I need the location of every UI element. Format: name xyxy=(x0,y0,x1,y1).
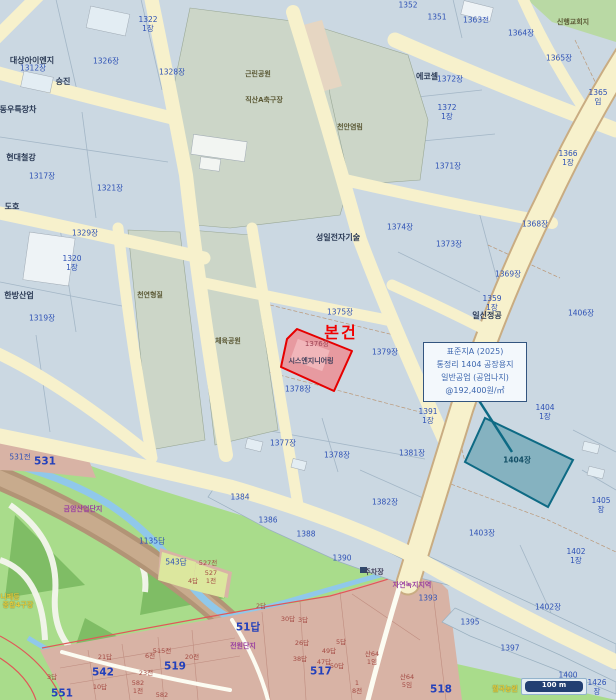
subject-marker-label: 본건 xyxy=(324,319,357,343)
map-label: 1373장 xyxy=(436,240,462,249)
map-label: 승진 xyxy=(56,77,71,87)
map-label: 1406장 xyxy=(568,309,594,318)
map-label: 1363전 xyxy=(463,16,489,25)
map-label: 천안염림 xyxy=(337,123,363,131)
map-label: 1365임 xyxy=(588,88,607,106)
map-label: 10답 xyxy=(93,684,107,692)
map-label: 1388 xyxy=(296,530,315,539)
map-label: 543답 xyxy=(165,558,186,567)
map-scale-bar: 100 m xyxy=(521,678,587,695)
map-label: 1378장 xyxy=(285,385,311,394)
map-label: 1322 1장 xyxy=(138,15,157,33)
map-label: 현대철강 xyxy=(6,153,35,163)
map-label: 1397 xyxy=(500,644,519,653)
map-label: 1366 1장 xyxy=(558,149,577,167)
map-label: 1390 xyxy=(332,554,351,563)
map-label: 1317장 xyxy=(29,172,55,181)
map-label: 주차장 xyxy=(364,568,383,576)
map-label: 에코셀 xyxy=(416,72,438,82)
annotation-line-2: 통정리 1404 공장용지 xyxy=(424,358,526,371)
map-label: 50답 xyxy=(330,663,344,671)
map-label: 582 xyxy=(156,692,168,700)
map-label: 월곡농원 xyxy=(492,685,518,693)
map-label: 1426장 xyxy=(587,678,606,696)
map-label: 1402 1장 xyxy=(566,547,585,565)
annotation-line-1: 표준지A (2025) xyxy=(424,345,526,358)
map-label: 1326장 xyxy=(93,57,119,66)
map-label: 3답 xyxy=(47,674,57,682)
standard-lot-annotation: 표준지A (2025) 통정리 1404 공장용지 일반공업 (공업나지) @1… xyxy=(423,342,527,402)
map-canvas[interactable]: 1322 1장135113521363전1364장1365장1365임1326장… xyxy=(0,0,616,700)
map-label: 47답 xyxy=(317,659,331,667)
map-label: 전원단지 xyxy=(230,642,256,650)
map-label: 1365장 xyxy=(546,54,572,63)
map-label: 니페등 xyxy=(0,593,19,601)
map-label: 531전 xyxy=(9,453,30,462)
map-label: 6전 xyxy=(145,653,155,661)
map-label: 대상아이엔지 xyxy=(10,56,54,66)
map-label: 도호 xyxy=(5,202,20,212)
map-label: 1321장 xyxy=(97,184,123,193)
map-label: 1404 1장 xyxy=(535,403,554,421)
map-label: 1328장 xyxy=(159,68,185,77)
map-label: 산64 5임 xyxy=(400,674,414,690)
map-label: 1402장 xyxy=(535,603,561,612)
map-label: 1386 xyxy=(258,516,277,525)
map-label: 1 8전 xyxy=(352,680,362,696)
map-label: 한방산업 xyxy=(4,291,33,301)
map-label: 551 xyxy=(51,688,73,700)
map-label: 직산A축구장 xyxy=(245,96,283,104)
map-label: 21답 xyxy=(98,654,112,662)
annotation-line-4: @192,400원/㎡ xyxy=(424,384,526,397)
map-label: 1404장 xyxy=(503,456,531,465)
map-label: 5답 xyxy=(336,639,346,647)
map-label: 1403장 xyxy=(469,529,495,538)
map-label: 1377장 xyxy=(270,439,296,448)
map-label: 1369장 xyxy=(495,270,521,279)
map-label: 1364장 xyxy=(508,29,534,38)
map-label: 1351 xyxy=(427,13,446,22)
map-label: 1312장 xyxy=(20,64,46,73)
map-label: 4답 xyxy=(188,578,198,586)
map-label: 성일전자기술 xyxy=(316,233,360,243)
map-label: 1395 xyxy=(460,618,479,627)
annotation-line-3: 일반공업 (공업나지) xyxy=(424,371,526,384)
map-label: 49답 xyxy=(322,648,336,656)
map-label: 1359 1장 xyxy=(482,294,501,312)
map-label: 30답 xyxy=(281,616,295,624)
map-label: 527 1전 xyxy=(205,570,217,586)
map-label: 2답 xyxy=(256,603,266,611)
map-label: 531 xyxy=(34,456,56,469)
map-label: 1320 1장 xyxy=(62,254,81,272)
map-label: 1378장 xyxy=(324,451,350,460)
map-label: 519 xyxy=(164,661,186,674)
scale-bar-label: 100 m xyxy=(525,681,583,692)
map-label: 근린공원 xyxy=(245,70,271,78)
map-label: 23전 xyxy=(139,670,153,678)
map-label: 1319장 xyxy=(29,314,55,323)
map-label: 1329장 xyxy=(72,229,98,238)
map-label: 1393 xyxy=(418,594,437,603)
map-label: 515전 xyxy=(153,648,171,656)
map-label: 1372장 xyxy=(437,75,463,84)
map-label: 3답 xyxy=(298,617,308,625)
map-label: 527전 xyxy=(199,560,217,568)
map-label: 1375장 xyxy=(327,308,353,317)
map-label: 1352 xyxy=(398,1,417,10)
map-label: 1382장 xyxy=(372,498,398,507)
map-label: 1381장 xyxy=(399,449,425,458)
map-label: 동우특장차 xyxy=(0,105,36,115)
map-label: 38답 xyxy=(293,656,307,664)
map-label: 517 xyxy=(310,666,332,679)
map-label: 51답 xyxy=(236,622,260,635)
map-label: 1384 xyxy=(230,493,249,502)
map-label: 1374장 xyxy=(387,223,413,232)
map-label: 1371장 xyxy=(435,162,461,171)
map-label: 1368장 xyxy=(522,220,548,229)
map-label: 천연형질 xyxy=(137,291,163,299)
map-label: 체육공원 xyxy=(215,337,241,345)
map-label: 종합4구장 xyxy=(3,601,34,609)
map-label: 20전 xyxy=(185,654,199,662)
map-label: 1391 1장 xyxy=(418,407,437,425)
map-label: 582 1전 xyxy=(132,680,144,696)
map-label: 26답 xyxy=(295,640,309,648)
map-label: 금암산업단지 xyxy=(64,505,103,513)
map-label: 신행교회지 xyxy=(557,18,589,26)
map-label: 1405장 xyxy=(591,496,610,514)
map-label: 1372 1장 xyxy=(437,103,456,121)
map-label: 1135답 xyxy=(139,537,165,546)
map-label: 1379장 xyxy=(372,348,398,357)
map-label: 542 xyxy=(92,667,114,680)
map-label: 518 xyxy=(430,684,452,697)
map-label: 일신정공 xyxy=(472,311,501,321)
map-label: 시스엔지니어링 xyxy=(288,357,333,365)
map-label: 산64 1임 xyxy=(365,651,379,667)
map-label: 자연녹지지역 xyxy=(393,581,432,589)
